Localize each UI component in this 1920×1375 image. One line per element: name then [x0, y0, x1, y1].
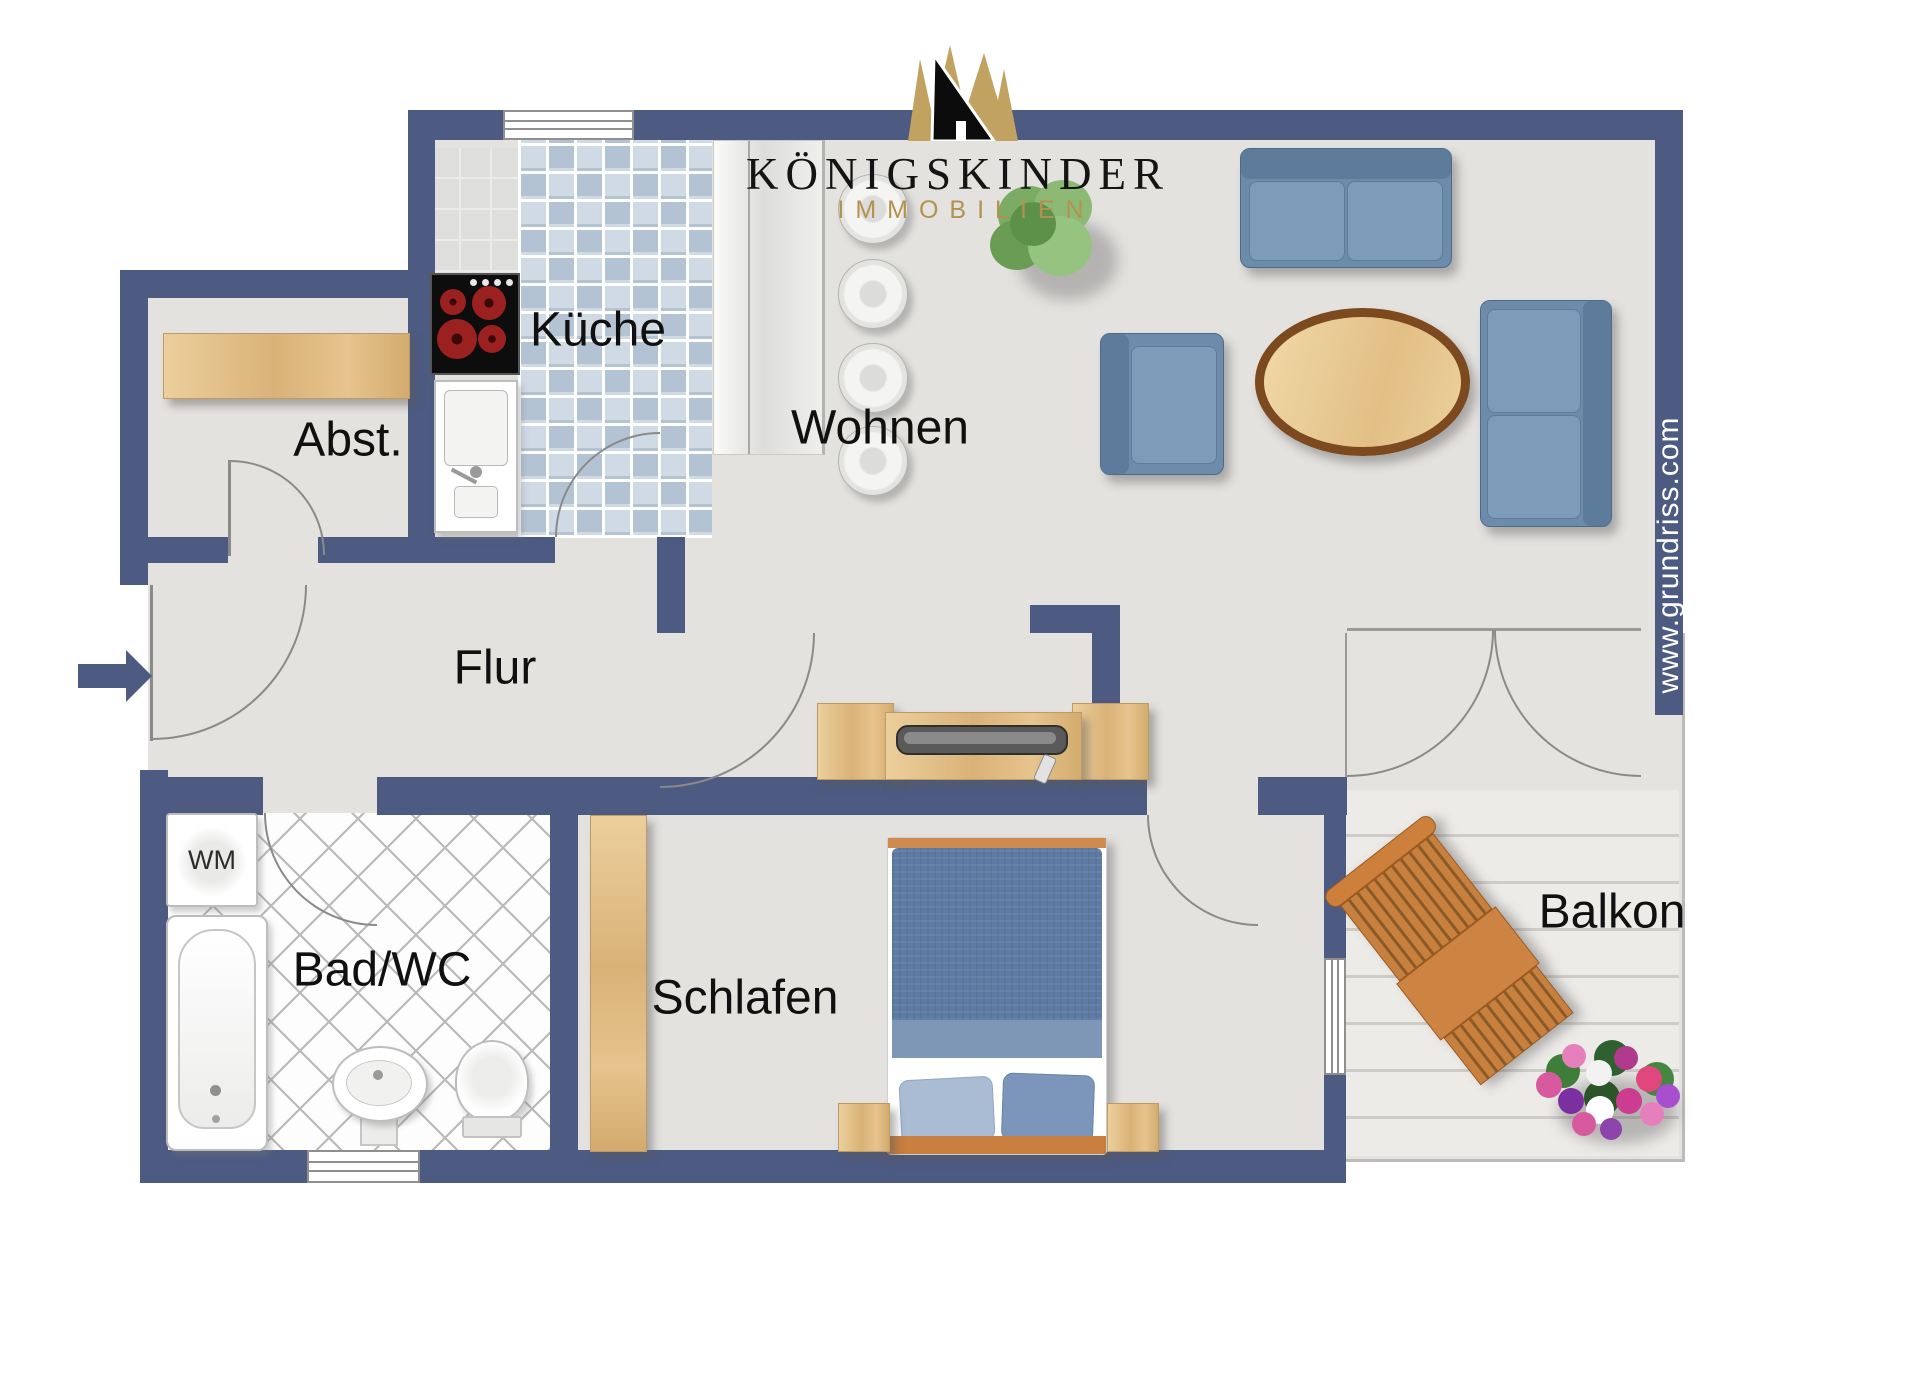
bed-headboard — [888, 1136, 1106, 1154]
flower-blossom — [1640, 1102, 1664, 1126]
stove-knob-icon — [494, 279, 501, 286]
nightstand — [838, 1103, 890, 1152]
armchair — [1100, 333, 1224, 475]
pillow — [1001, 1072, 1095, 1143]
toilet-tank — [462, 1116, 522, 1138]
flower-blossom — [1616, 1088, 1642, 1114]
wall-bath-left — [140, 770, 168, 1183]
armchair-backrest — [1101, 334, 1129, 474]
washing-machine-label: WM — [188, 845, 236, 876]
wall-bottom-b — [420, 1150, 1346, 1183]
wall-abst-top — [120, 270, 408, 298]
bathroom-window — [307, 1150, 420, 1183]
logo-subtitle: IMMOBILIEN — [837, 196, 1094, 225]
wall-abst-left — [120, 270, 148, 585]
wall-top-left — [408, 110, 503, 140]
sofa-cushion — [1249, 181, 1345, 261]
bathtub — [166, 915, 268, 1151]
tub-faucet-icon — [212, 1115, 220, 1123]
room-label-wohnen: Wohnen — [791, 401, 969, 456]
stove-knob-icon — [506, 279, 513, 286]
sofa-cushion — [1347, 181, 1443, 261]
room-label-kueche: Küche — [530, 303, 666, 358]
bathtub-basin — [178, 929, 256, 1129]
armchair-cushion — [1131, 346, 1217, 464]
toilet — [455, 1040, 529, 1122]
kitchen-window-pane — [503, 120, 634, 130]
bedroom-window — [1324, 958, 1346, 1075]
floor-plan: WM Küche Abst. Flur — [0, 0, 1920, 1375]
sofa-right-backrest — [1583, 301, 1611, 526]
logo-title: KÖNIGSKINDER — [746, 148, 1170, 200]
faucet-icon — [470, 466, 482, 478]
outside-notch — [114, 82, 408, 270]
wall-bath-top — [140, 777, 263, 815]
nightstand — [1107, 1103, 1159, 1152]
stove-burner-icon — [472, 286, 506, 320]
flower-blossom — [1536, 1072, 1562, 1098]
stove-icon — [430, 273, 520, 375]
wall-bath-bedroom — [550, 777, 578, 1183]
flower-blossom — [1586, 1060, 1612, 1086]
room-label-flur: Flur — [454, 641, 537, 696]
wall-top-right — [634, 110, 1683, 140]
wall-bedroom-top-right — [1258, 777, 1347, 815]
bathroom-sink — [332, 1046, 428, 1122]
flower-blossom — [1562, 1044, 1586, 1068]
kitchen-window — [503, 110, 634, 140]
bed-duvet-fold — [892, 1020, 1102, 1058]
coffee-table — [1255, 308, 1470, 456]
watermark-url: www.grundriss.com — [1652, 416, 1686, 693]
stove-burner-icon — [440, 289, 466, 315]
double-bed — [887, 837, 1107, 1155]
washing-machine: WM — [166, 813, 258, 907]
kitchen-sink-basin — [444, 390, 508, 466]
flower-pot — [1528, 1032, 1688, 1148]
flower-blossom — [1572, 1112, 1596, 1136]
room-label-schlafen: Schlafen — [652, 971, 839, 1026]
pillow — [898, 1076, 995, 1145]
sideboard-block-left — [817, 703, 894, 780]
room-label-abst: Abst. — [293, 413, 402, 468]
drain-icon — [210, 1085, 221, 1096]
stove-knob-icon — [470, 279, 477, 286]
room-label-balkon: Balkon — [1539, 885, 1686, 940]
flower-blossom — [1558, 1088, 1584, 1114]
storage-shelf — [163, 333, 410, 399]
room-label-bad: Bad/WC — [293, 943, 472, 998]
wall-living-stub-h — [1030, 605, 1120, 633]
bed-duvet — [892, 848, 1102, 1020]
tv-icon — [896, 725, 1068, 755]
bedroom-window-pane — [1331, 958, 1340, 1075]
sink-bowl — [346, 1060, 412, 1106]
flower-blossom — [1614, 1046, 1638, 1070]
wall-bedroom-top — [377, 777, 1147, 815]
kitchen-sink — [434, 380, 518, 533]
entrance-arrow — [78, 664, 126, 688]
crown-notch — [956, 121, 966, 141]
kitchen-counter-tiles — [428, 148, 520, 272]
stove-burner-icon — [437, 319, 477, 359]
stove-knob-icon — [482, 279, 489, 286]
sofa-right — [1480, 300, 1612, 527]
stove-burner-icon — [478, 325, 506, 353]
sofa-right-cushion — [1487, 309, 1581, 413]
wall-bottom-a — [140, 1150, 307, 1183]
entrance-arrow-head — [126, 650, 152, 702]
wall-hall-top-b — [318, 537, 555, 563]
tv-screen — [904, 732, 1056, 744]
sofa-backrest — [1241, 149, 1451, 179]
sideboard-block-right — [1072, 703, 1149, 780]
sink-faucet-icon — [373, 1070, 383, 1080]
sideboard-board — [885, 712, 1082, 780]
bed-foot-rail — [888, 838, 1106, 848]
kitchen-sink-basin-small — [454, 486, 498, 518]
wall-hall-top-a — [148, 537, 228, 563]
wall-bedroom-right-b — [1324, 1073, 1346, 1150]
wall-kitchen-passage — [657, 537, 685, 633]
sofa-right-cushion — [1487, 415, 1581, 519]
plate-icon — [838, 259, 908, 329]
remote-icon — [1033, 753, 1057, 784]
wardrobe — [590, 815, 647, 1152]
flower-blossom — [1600, 1118, 1622, 1140]
sofa-two-seat — [1240, 148, 1452, 268]
bathroom-window-pane — [307, 1161, 420, 1173]
crown-logo-icon — [898, 45, 1022, 141]
